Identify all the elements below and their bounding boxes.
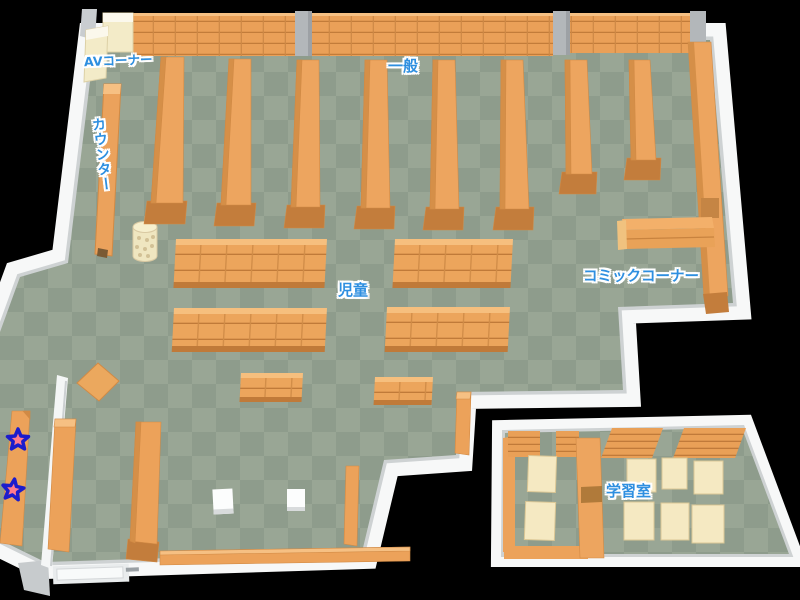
study-table [624, 502, 654, 540]
label-study-room: 学習室 [606, 484, 651, 500]
stool [212, 488, 233, 514]
study-table [694, 461, 723, 494]
bookshelf [344, 466, 359, 546]
label-general: 一般 [388, 59, 418, 75]
stool [287, 489, 305, 511]
bookshelf [455, 392, 471, 455]
study-table [661, 503, 689, 540]
study-table [527, 456, 556, 493]
floor-map-graphic [0, 0, 800, 600]
library-floor-map: AVコーナー カウンター 一般 児童 コミックコーナー 学習室 [0, 0, 800, 600]
study-table [524, 501, 555, 540]
label-comic-corner: コミックコーナー [583, 270, 699, 285]
cylinder-bin [133, 222, 157, 262]
study-table [662, 458, 687, 489]
comic-corner-shelf [617, 217, 715, 250]
label-av-corner: AVコーナー [84, 53, 153, 69]
wall-shelves-top [133, 13, 690, 56]
study-divider-shelf [576, 438, 604, 558]
study-table [692, 505, 724, 543]
entrance-door [53, 563, 140, 584]
label-children: 児童 [338, 283, 368, 299]
